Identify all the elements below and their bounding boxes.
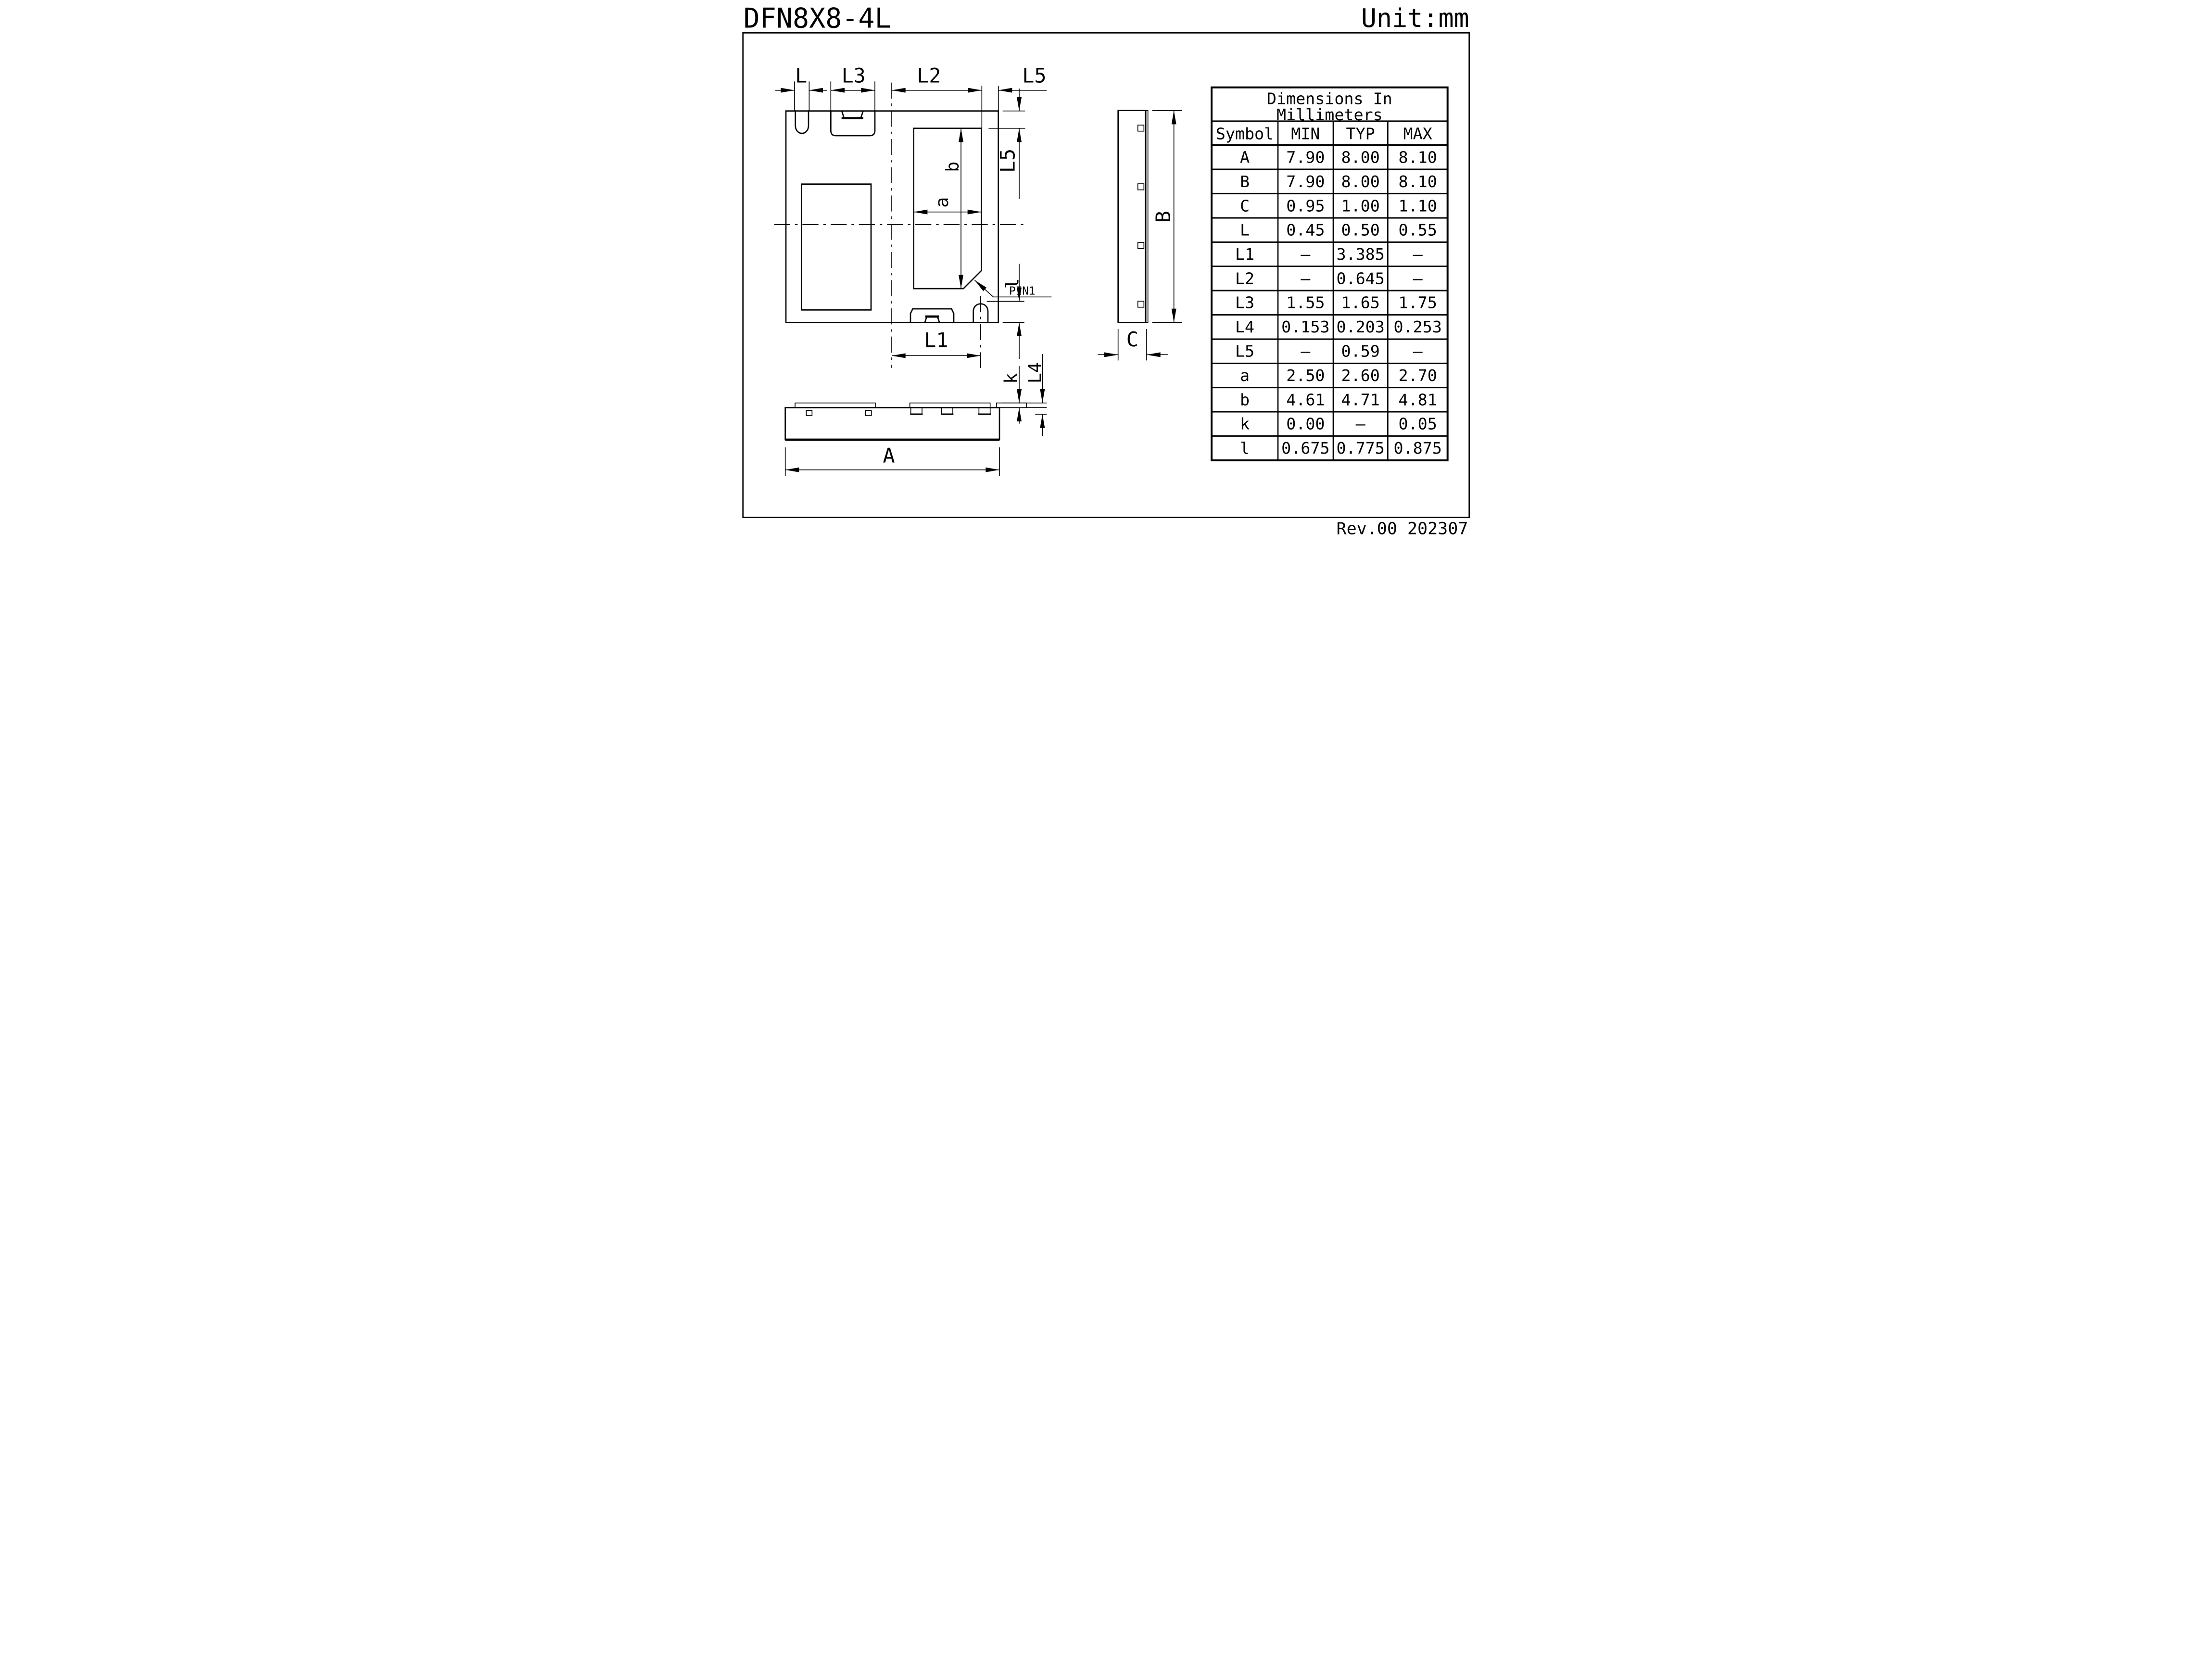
body-outline: [785, 407, 999, 440]
table-row: a 2.50 2.60 2.70: [1240, 366, 1437, 385]
col-header-min: MIN: [1291, 124, 1320, 143]
table-row: A 7.90 8.00 8.10: [1240, 148, 1437, 167]
col-header-symbol: Symbol: [1216, 124, 1274, 143]
cell-min: 1.55: [1286, 293, 1325, 312]
lead-window: [1138, 242, 1144, 249]
lead-window: [1138, 301, 1144, 307]
dimensions-table: Dimensions In Millimeters Symbol MIN TYP…: [1212, 88, 1448, 460]
table-row: B 7.90 8.00 8.10: [1240, 172, 1437, 191]
lead-oval-top-left: [796, 111, 809, 133]
cell-max: –: [1413, 269, 1423, 288]
package-outline-drawing: DFN8X8-4L Unit:mm Rev.00 202307: [737, 0, 1475, 559]
page-title: DFN8X8-4L: [744, 2, 891, 34]
cell-min: 0.153: [1281, 317, 1329, 336]
dim-label-b: b: [942, 162, 963, 172]
lead-pad-top: [831, 111, 875, 136]
cell-max: 0.875: [1393, 439, 1441, 457]
cell-typ: 2.60: [1341, 366, 1380, 385]
dim-label-a: a: [932, 197, 952, 208]
unit-label: Unit:mm: [1361, 3, 1469, 33]
cell-min: 0.675: [1281, 439, 1329, 457]
dim-label-A: A: [883, 444, 895, 468]
cell-typ: 1.00: [1341, 196, 1380, 215]
table-row: l 0.675 0.775 0.875: [1240, 439, 1442, 457]
body-outline: [1118, 111, 1146, 323]
side-view: B C: [1098, 111, 1182, 361]
cell-symbol: l: [1240, 439, 1250, 457]
table-row: k 0.00 – 0.05: [1240, 415, 1437, 433]
cell-typ: 0.775: [1337, 439, 1385, 457]
cell-symbol: L3: [1235, 293, 1254, 312]
cell-typ: 8.00: [1341, 172, 1380, 191]
cell-min: –: [1301, 342, 1311, 361]
cell-typ: 0.645: [1337, 269, 1385, 288]
dim-label-k: k: [1001, 373, 1022, 384]
cell-typ: 1.65: [1341, 293, 1380, 312]
cell-max: 8.10: [1399, 172, 1437, 191]
lead: [979, 407, 990, 414]
cell-max: –: [1413, 245, 1423, 264]
dim-label-L2: L2: [917, 64, 941, 88]
cell-max: 0.05: [1399, 415, 1437, 433]
dim-label-L3: L3: [842, 64, 866, 88]
cell-symbol: k: [1240, 415, 1250, 433]
cell-max: 8.10: [1399, 148, 1437, 167]
cell-symbol: b: [1240, 390, 1250, 409]
cell-typ: 4.71: [1341, 390, 1380, 409]
dim-label-B: B: [1151, 211, 1175, 223]
drawing-sheet: DFN8X8-4L Unit:mm Rev.00 202307: [737, 0, 1475, 559]
lead-window: [1138, 184, 1144, 190]
cell-min: –: [1301, 245, 1311, 264]
leadframe-bar: [795, 403, 875, 408]
dim-label-L4: L4: [1025, 362, 1046, 383]
cell-min: 7.90: [1286, 148, 1325, 167]
front-view: A k L4: [785, 354, 1047, 476]
cell-min: 0.00: [1286, 415, 1325, 433]
table-row: b 4.61 4.71 4.81: [1240, 390, 1437, 409]
cell-typ: –: [1356, 415, 1366, 433]
cell-max: –: [1413, 342, 1423, 361]
dim-label-L1: L1: [924, 329, 948, 352]
lead: [911, 407, 922, 414]
cell-min: 7.90: [1286, 172, 1325, 191]
cell-min: –: [1301, 269, 1311, 288]
cell-max: 0.253: [1393, 317, 1441, 336]
cell-typ: 0.50: [1341, 221, 1380, 240]
dim-label-l: l: [1002, 278, 1023, 289]
cell-symbol: L5: [1235, 342, 1254, 361]
col-header-max: MAX: [1403, 124, 1432, 143]
cell-typ: 3.385: [1337, 245, 1385, 264]
cell-max: 1.75: [1399, 293, 1437, 312]
cell-typ: 0.59: [1341, 342, 1380, 361]
cell-min: 0.95: [1286, 196, 1325, 215]
table-row: L 0.45 0.50 0.55: [1240, 221, 1437, 240]
leadframe-bar: [910, 403, 990, 408]
lead-window: [866, 410, 872, 416]
thermal-pad-left: [801, 184, 871, 310]
lead: [942, 407, 953, 414]
dim-label-C: C: [1126, 328, 1138, 351]
table-row: C 0.95 1.00 1.10: [1240, 196, 1437, 215]
table-title-line2: Millimeters: [1277, 105, 1383, 124]
cell-typ: 8.00: [1341, 148, 1380, 167]
dim-label-L5-side: L5: [996, 149, 1020, 173]
revision-label: Rev.00 202307: [1337, 520, 1468, 539]
table-row: L4 0.153 0.203 0.253: [1235, 317, 1442, 336]
dim-label-L: L: [795, 64, 807, 88]
cell-min: 4.61: [1286, 390, 1325, 409]
cell-typ: 0.203: [1337, 317, 1385, 336]
lead-window: [806, 410, 812, 416]
cell-symbol: C: [1240, 196, 1250, 215]
cell-max: 1.10: [1399, 196, 1437, 215]
cell-min: 0.45: [1286, 221, 1325, 240]
top-view: L L3 L2 L5 L5 b a PIN1 l L1: [774, 64, 1052, 368]
cell-max: 4.81: [1399, 390, 1437, 409]
cell-symbol: a: [1240, 366, 1250, 385]
leadframe-strip: [1146, 111, 1148, 323]
exposed-pad: [914, 128, 982, 289]
table-row: L3 1.55 1.65 1.75: [1235, 293, 1437, 312]
cell-symbol: A: [1240, 148, 1250, 167]
dim-label-L5-top: L5: [1022, 64, 1046, 88]
leadframe-bar: [997, 403, 1027, 408]
col-header-typ: TYP: [1346, 124, 1375, 143]
cell-symbol: B: [1240, 172, 1250, 191]
cell-symbol: L2: [1235, 269, 1254, 288]
table-row: L5 – 0.59 –: [1235, 342, 1423, 361]
cell-symbol: L1: [1235, 245, 1254, 264]
table-row: L1 – 3.385 –: [1235, 245, 1423, 264]
cell-symbol: L: [1240, 221, 1250, 240]
cell-min: 2.50: [1286, 366, 1325, 385]
cell-max: 0.55: [1399, 221, 1437, 240]
table-row: L2 – 0.645 –: [1235, 269, 1423, 288]
cell-max: 2.70: [1399, 366, 1437, 385]
lead-window: [1138, 125, 1144, 131]
cell-symbol: L4: [1235, 317, 1254, 336]
